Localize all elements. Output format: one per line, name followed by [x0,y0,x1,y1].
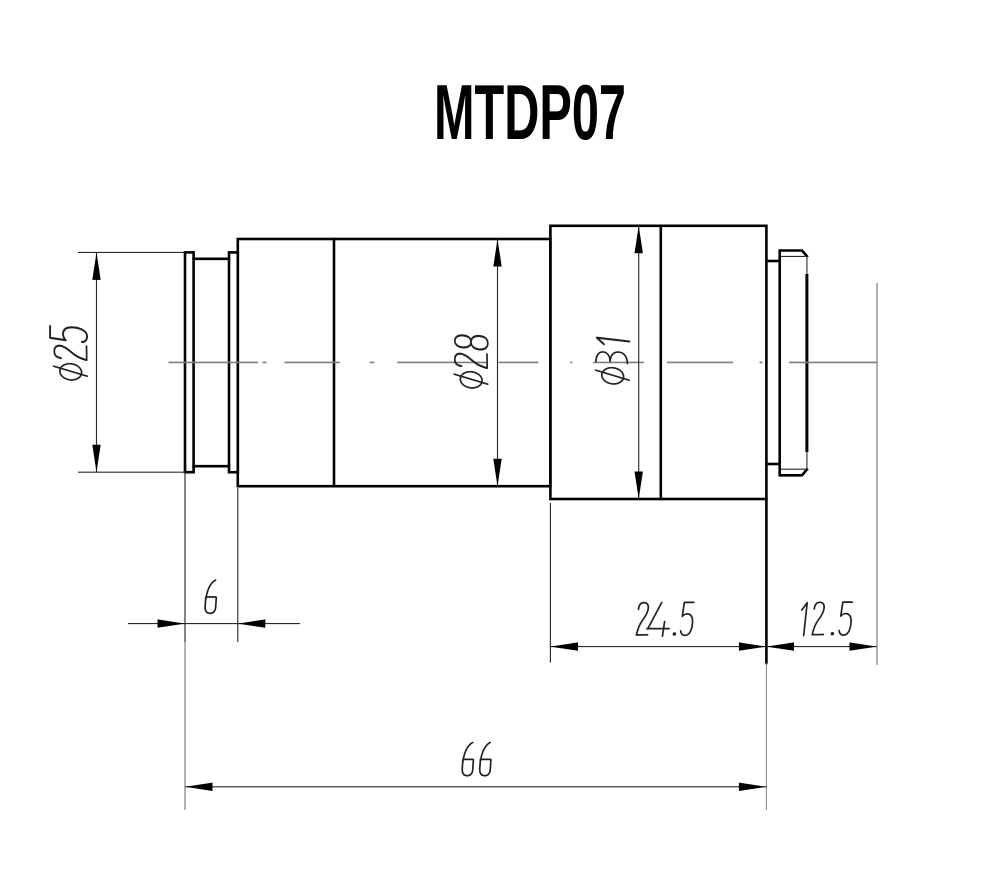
svg-text:MTDP07: MTDP07 [434,70,626,156]
